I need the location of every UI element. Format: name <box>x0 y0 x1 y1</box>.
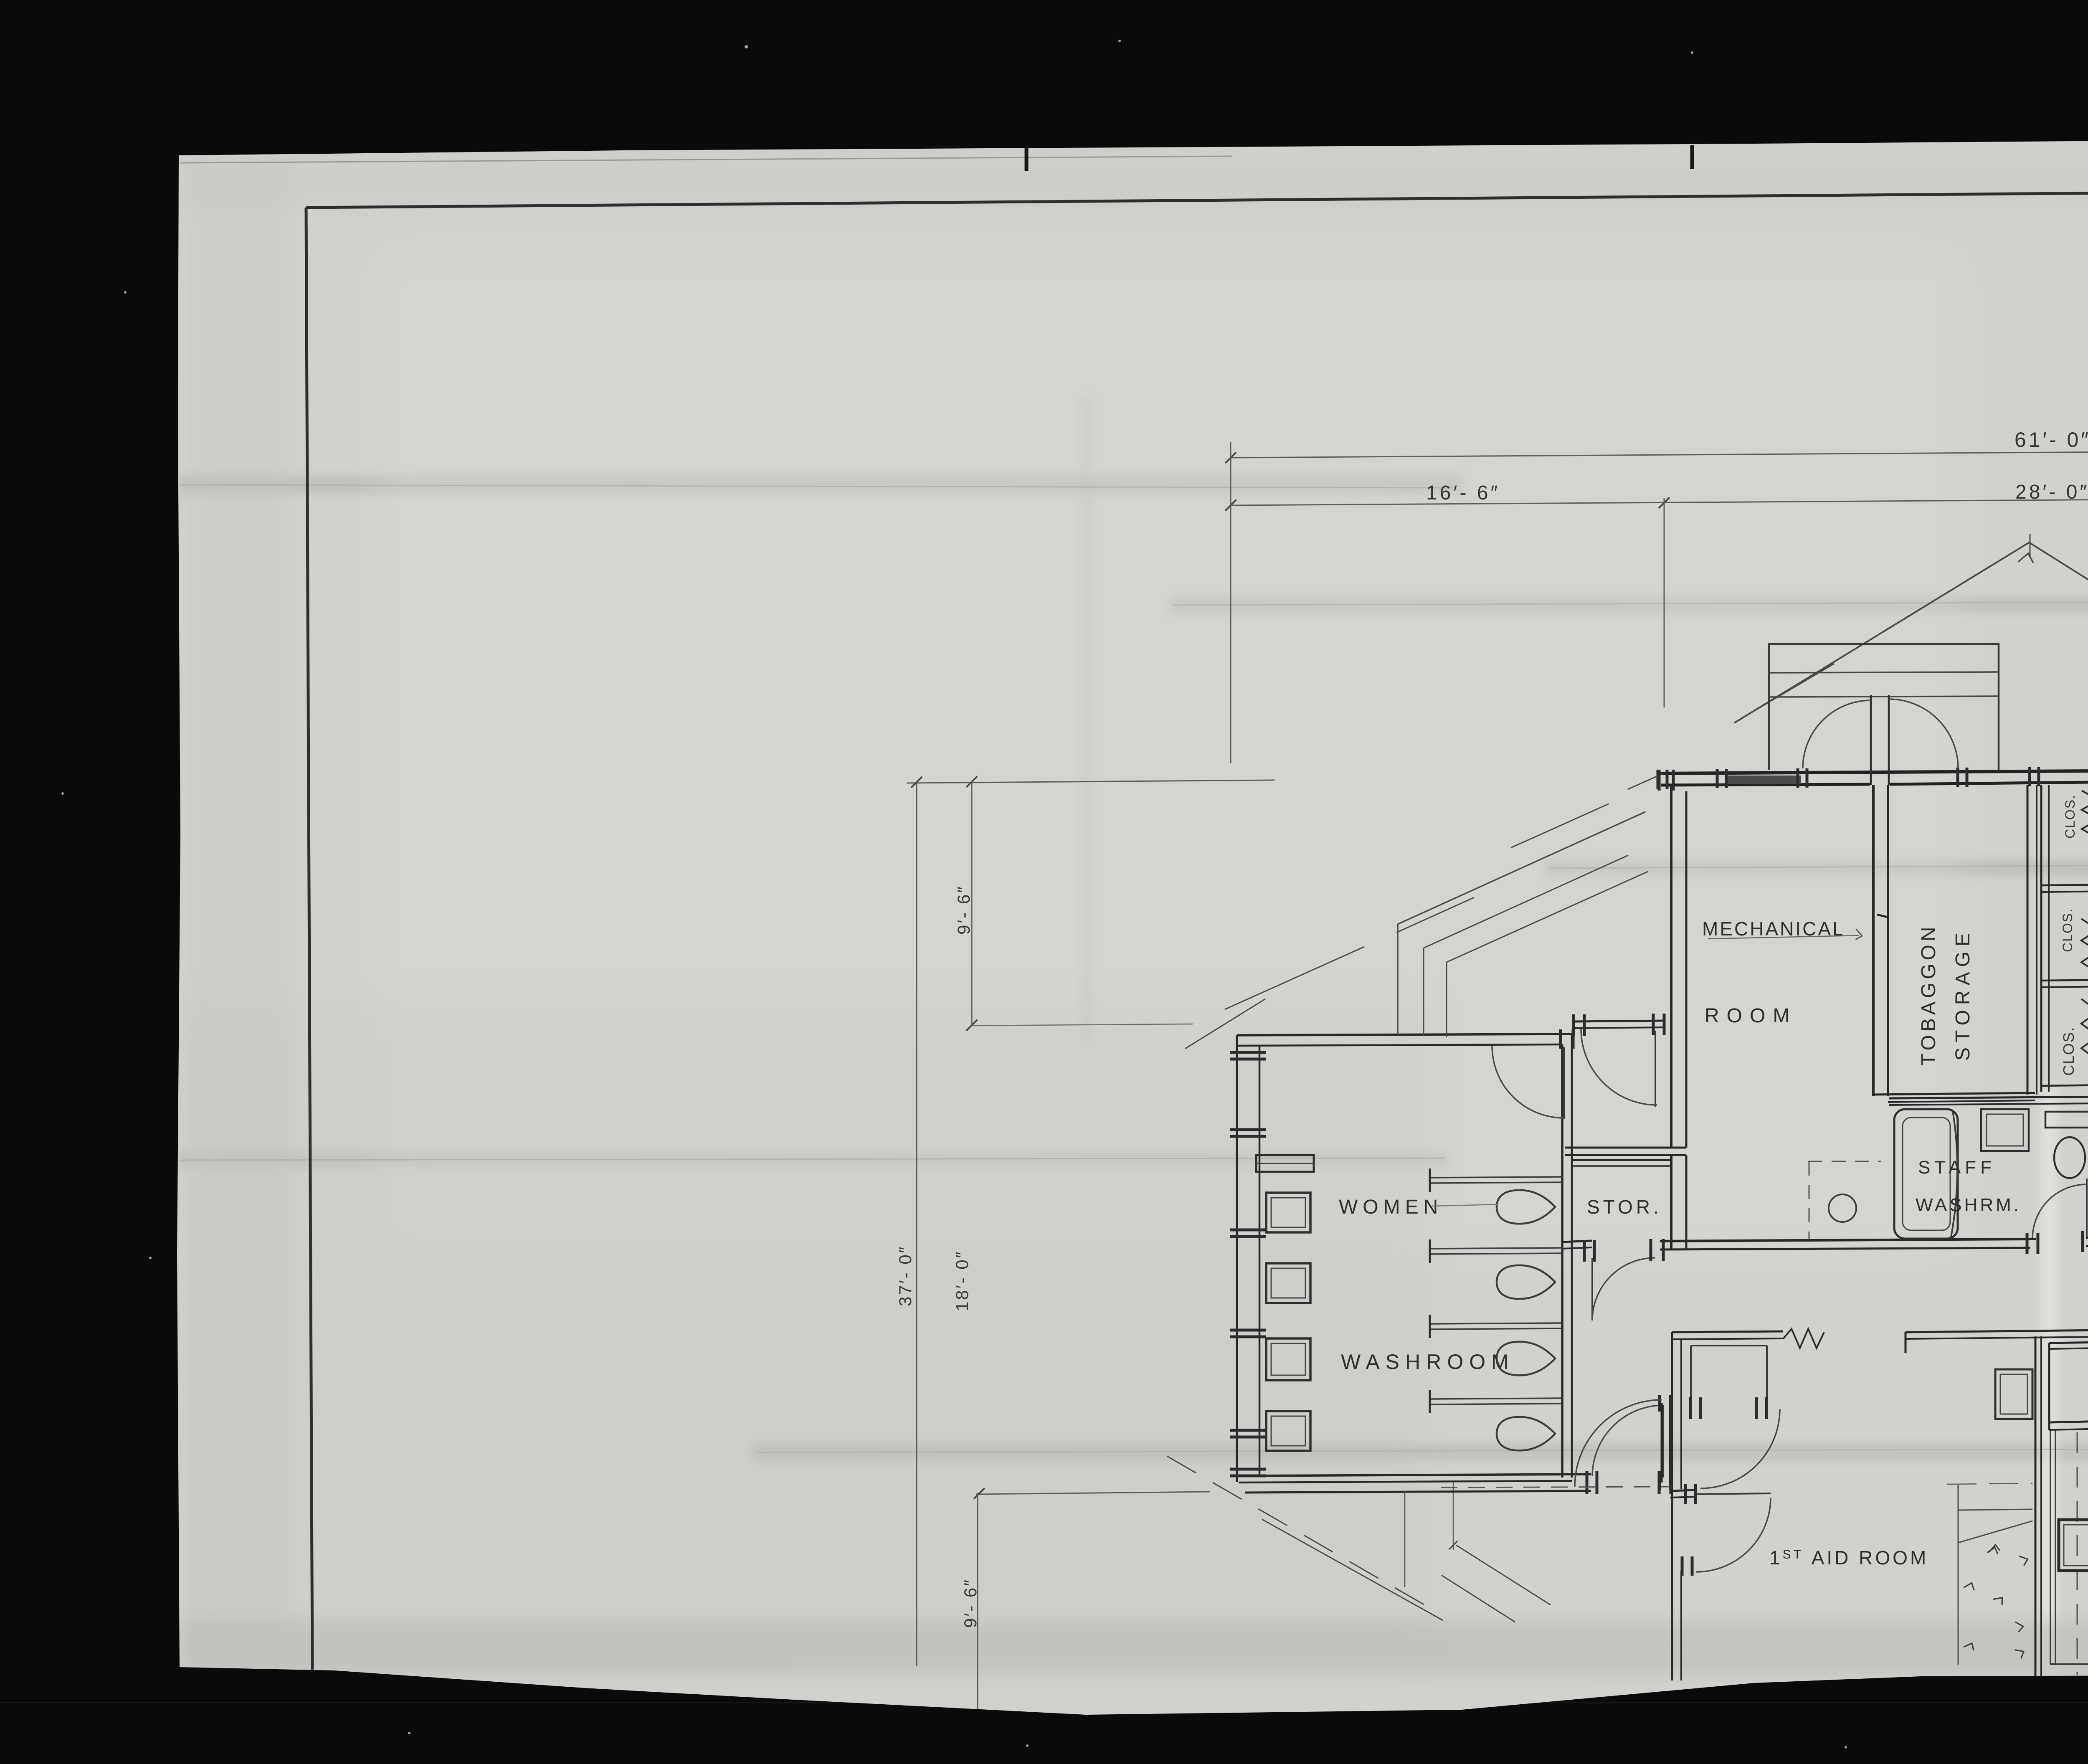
svg-text:STOR.: STOR. <box>1587 1196 1662 1218</box>
svg-text:WASHROOM: WASHROOM <box>1341 1350 1515 1374</box>
svg-text:STAFF: STAFF <box>1918 1157 1996 1178</box>
svg-text:CLOS.: CLOS. <box>2060 1026 2077 1076</box>
svg-text:WASHRM.: WASHRM. <box>1916 1195 2021 1215</box>
svg-text:9′- 6″: 9′- 6″ <box>954 885 973 935</box>
svg-text:28′- 0″: 28′- 0″ <box>2015 481 2088 503</box>
svg-text:CLOS.: CLOS. <box>2063 794 2078 839</box>
svg-text:CLOS.: CLOS. <box>2060 908 2075 952</box>
svg-text:18′- 0″: 18′- 0″ <box>952 1250 972 1311</box>
svg-text:16′- 6″: 16′- 6″ <box>1426 482 1500 504</box>
svg-text:61′- 0″: 61′- 0″ <box>2015 428 2088 451</box>
svg-text:STORAGE: STORAGE <box>1952 928 1974 1061</box>
svg-text:TOBAGGON: TOBAGGON <box>1918 924 1940 1066</box>
svg-text:WOMEN: WOMEN <box>1339 1196 1443 1218</box>
svg-text:ROOM: ROOM <box>1705 1005 1797 1027</box>
svg-text:37′- 0″: 37′- 0″ <box>895 1245 915 1306</box>
svg-text:9′- 6″: 9′- 6″ <box>960 1578 980 1628</box>
